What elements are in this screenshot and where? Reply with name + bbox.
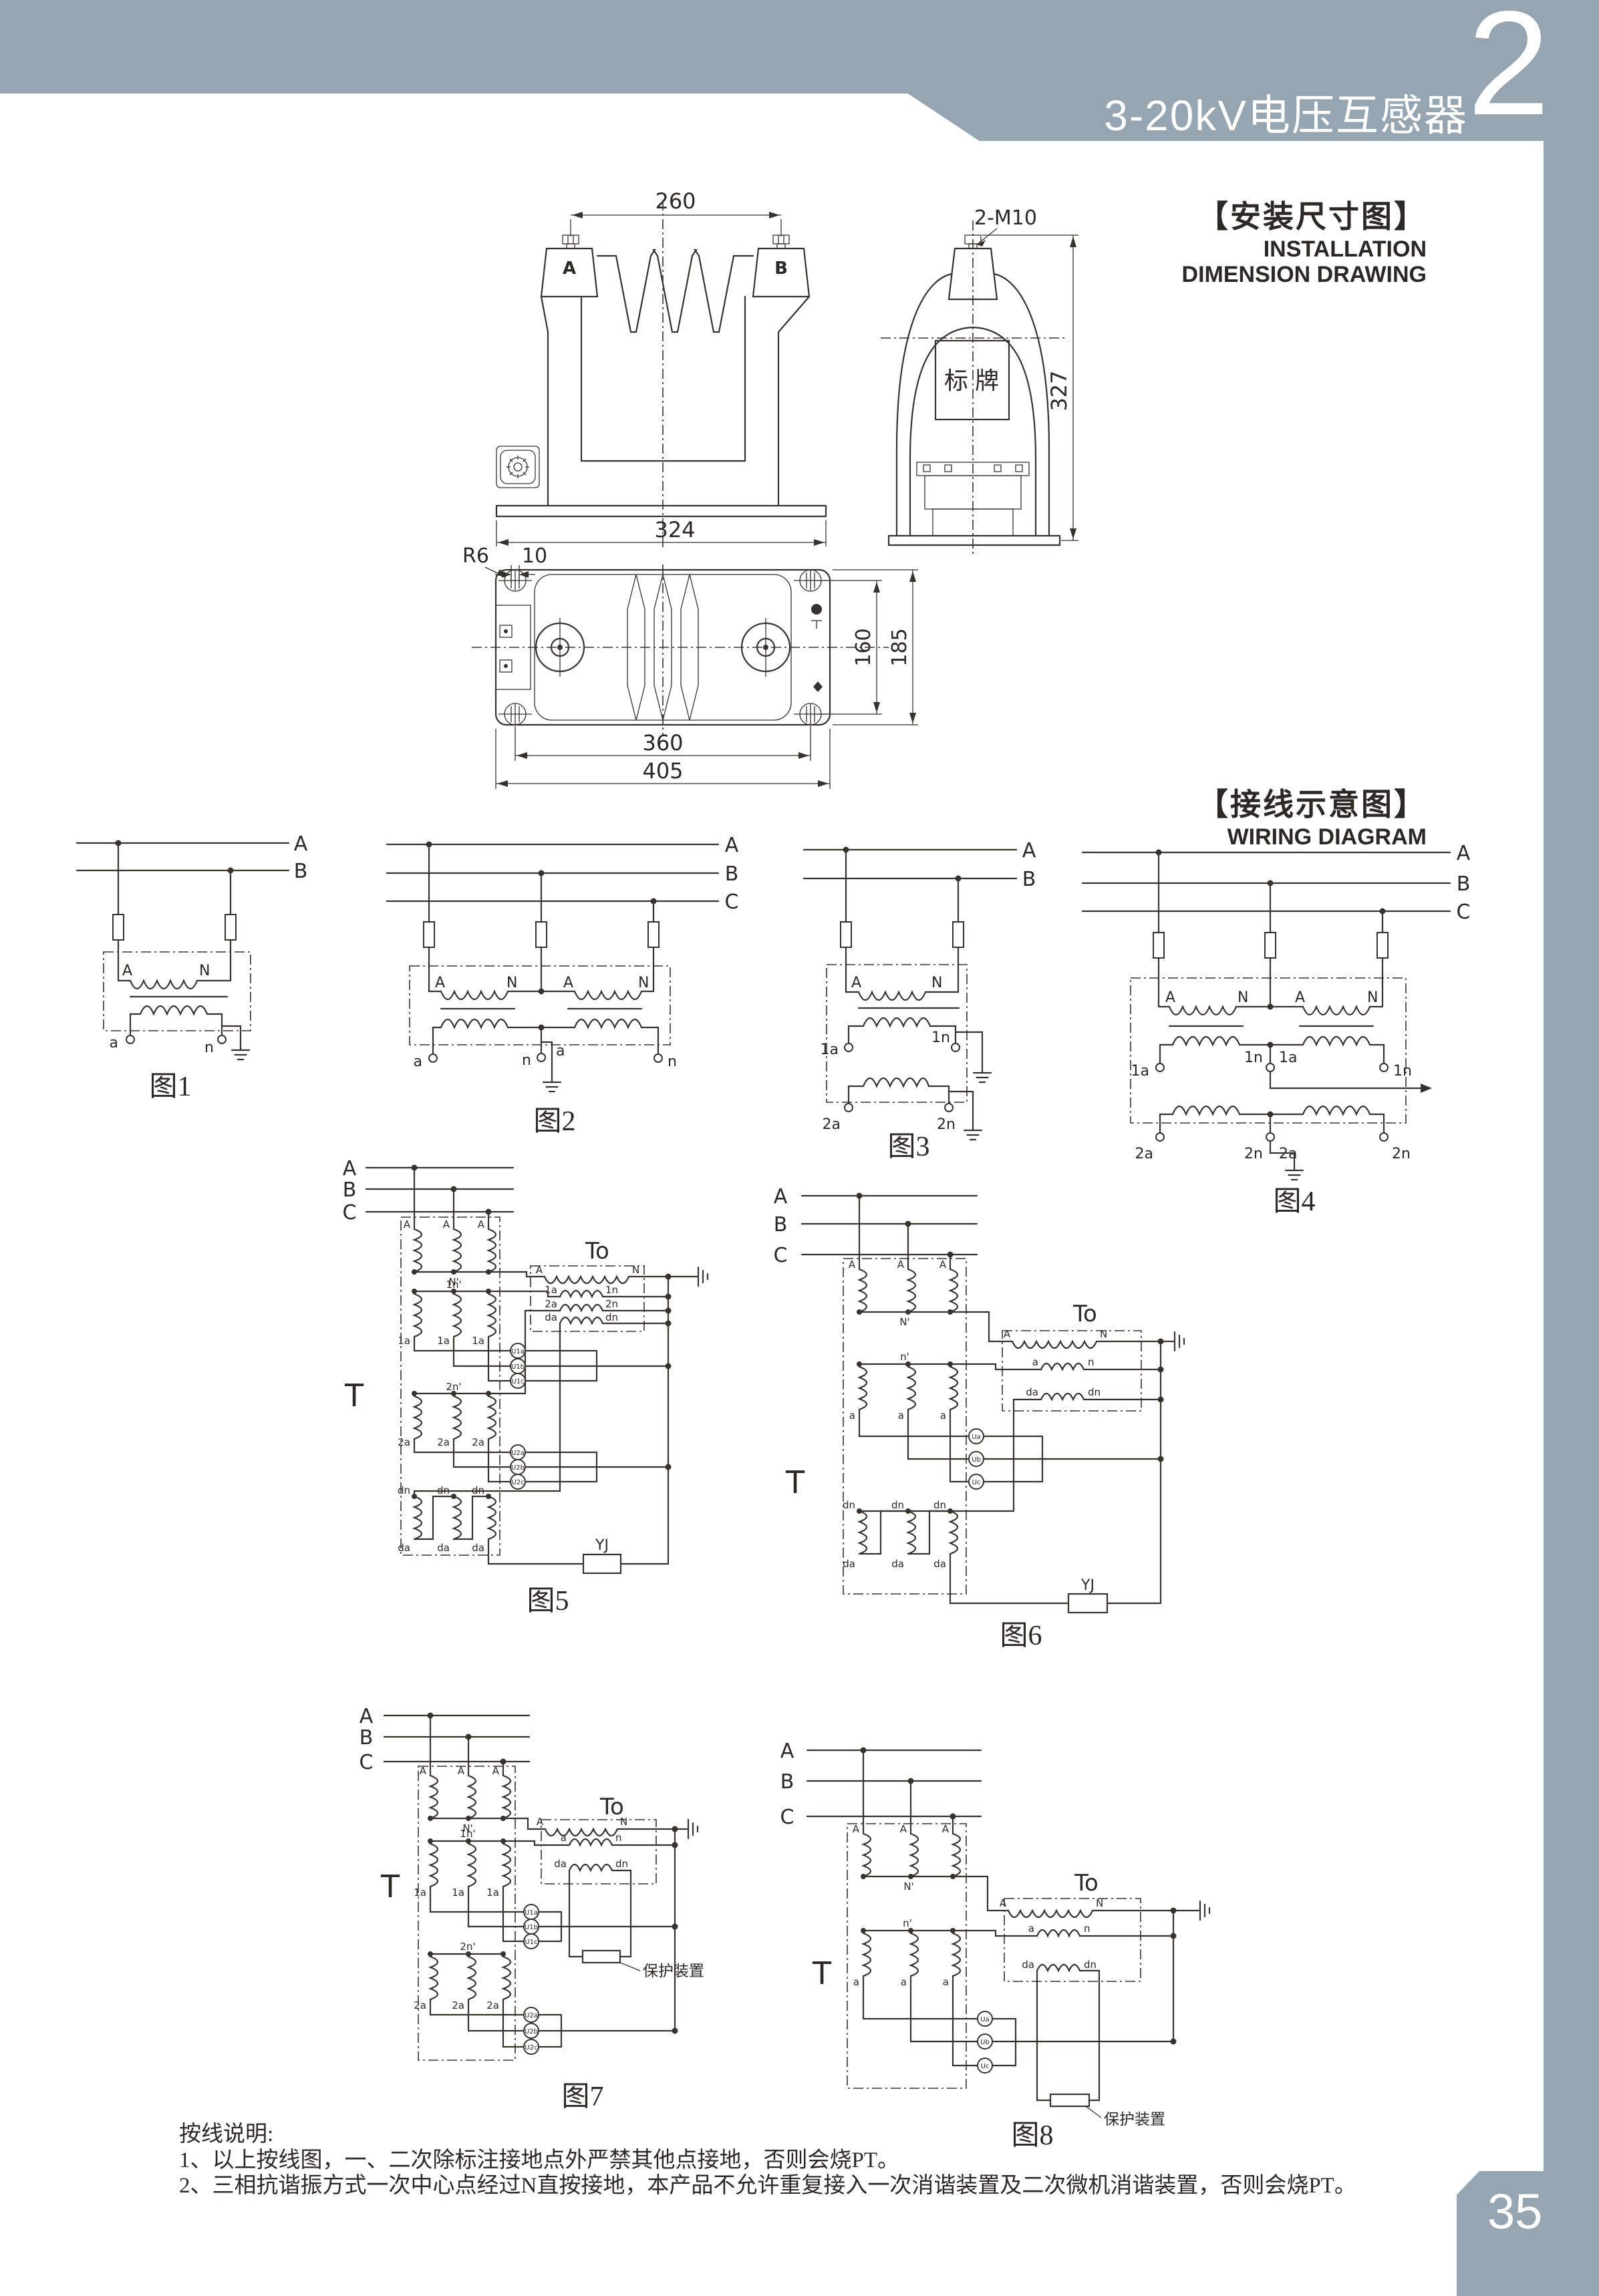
terminal-label: da xyxy=(843,1558,855,1570)
winding-label: A xyxy=(942,1823,950,1835)
dim-405: 405 xyxy=(642,758,683,784)
winding-label: a xyxy=(1032,1356,1038,1368)
winding-label: A xyxy=(897,1259,905,1271)
secondary-terminal: a xyxy=(556,1043,565,1059)
terminal-label: 1a xyxy=(414,1887,426,1899)
winding-label: da xyxy=(545,1311,557,1323)
row-label: 2n' xyxy=(446,1381,461,1393)
winding-label: N xyxy=(1096,1897,1103,1909)
secondary-terminal: 1n xyxy=(931,1029,950,1046)
header-band xyxy=(0,0,1599,94)
bus-label: B xyxy=(359,1726,374,1750)
wiring-figure-8: A B C T A A A N' To A N a n da dn 保护装置 n… xyxy=(775,1730,1243,2171)
bus-label: B xyxy=(774,1213,788,1237)
notes-title: 按线说明: xyxy=(179,2122,1409,2148)
winding-label: dn xyxy=(1088,1386,1101,1398)
terminal-label: a xyxy=(901,1976,907,1988)
bus-label: C xyxy=(780,1806,794,1829)
winding-label: n xyxy=(615,1832,622,1844)
row-label: 1n' xyxy=(446,1279,461,1291)
secondary-terminal: 1a xyxy=(1131,1063,1149,1080)
meter-label: U1a xyxy=(511,1348,525,1355)
winding-label: A xyxy=(536,1264,543,1276)
dim-324: 324 xyxy=(654,517,695,542)
row-label: 1n' xyxy=(460,1828,475,1840)
row-label: n' xyxy=(900,1351,909,1363)
secondary-terminal: 1n xyxy=(1393,1063,1412,1080)
terminal-label: dn xyxy=(843,1499,855,1511)
meter-label: U1b xyxy=(525,1924,538,1931)
winding-label: A xyxy=(537,1816,544,1828)
page-title: 3-20kV电压互感器 xyxy=(1104,81,1468,143)
meter-label: U2b xyxy=(525,2028,538,2035)
winding-label: A xyxy=(849,1259,856,1271)
winding-label: A xyxy=(458,1765,465,1777)
terminal-b-label: B xyxy=(774,259,788,279)
installation-heading-zh: 【安装尺寸图】 xyxy=(1182,192,1427,236)
ground-symbol xyxy=(543,1082,561,1092)
terminal-label: 2a xyxy=(472,1436,484,1448)
primary-label: A xyxy=(435,975,445,991)
winding-label: dn xyxy=(605,1311,618,1323)
winding-label: N xyxy=(632,1264,639,1276)
neutral-label: N' xyxy=(899,1316,909,1328)
wiring-figure-7: A B C T A A A N' To A N a n da dn 保护装置 1… xyxy=(314,1697,768,2124)
figure-caption: 图3 xyxy=(887,1132,929,1162)
transformer-group-label: T xyxy=(812,1955,832,1991)
winding-label: a xyxy=(561,1832,567,1844)
dim-160: 160 xyxy=(852,628,875,666)
front-view: 260 A B xyxy=(496,188,826,548)
bus-label: B xyxy=(1457,872,1471,896)
figure-caption: 图6 xyxy=(1000,1621,1042,1651)
winding-label: 2a xyxy=(545,1298,557,1310)
protection-device-label: 保护装置 xyxy=(643,1963,704,1980)
ground-symbol xyxy=(964,1130,982,1140)
aux-transformer-label: To xyxy=(1074,1870,1099,1897)
installation-heading-en1: INSTALLATION xyxy=(1182,236,1427,262)
installation-heading-en2: DIMENSION DRAWING xyxy=(1182,262,1427,287)
bus-label: A xyxy=(780,1740,794,1763)
plan-view: R6 10 160 185 360 405 xyxy=(462,544,918,789)
terminal-label: 1a xyxy=(486,1887,499,1899)
terminal-label: da xyxy=(891,1558,904,1570)
row-label: 2n' xyxy=(460,1941,475,1953)
winding-label: da xyxy=(554,1858,567,1870)
winding-label: a xyxy=(1028,1923,1034,1935)
winding-label: A xyxy=(1004,1328,1011,1340)
secondary-terminal: 2n xyxy=(1392,1146,1411,1162)
primary-label: N xyxy=(1367,989,1378,1006)
ground-stud xyxy=(811,604,822,615)
winding-label: A xyxy=(900,1823,907,1835)
ground-symbol xyxy=(1200,1901,1209,1920)
bus-label: C xyxy=(343,1201,357,1224)
bus-label: B xyxy=(780,1770,794,1794)
secondary-terminal: n xyxy=(668,1053,677,1070)
primary-label: N xyxy=(931,975,942,991)
transformer-group-label: T xyxy=(344,1377,364,1414)
bus-label: A xyxy=(1022,839,1036,862)
terminal-label: dn xyxy=(891,1499,904,1511)
winding-label: A xyxy=(853,1823,860,1835)
winding-label: N xyxy=(620,1816,627,1828)
winding-label: dn xyxy=(1084,1959,1097,1971)
meter-label: Uc xyxy=(981,2063,990,2070)
terminal-label: a xyxy=(849,1410,855,1422)
figure-caption: 图1 xyxy=(149,1072,191,1102)
ground-symbol xyxy=(1286,1170,1303,1180)
primary-label: N xyxy=(506,975,517,991)
bus-label: A xyxy=(343,1157,357,1180)
winding-label: A xyxy=(492,1765,500,1777)
notes-line-1: 1、以上按线图，一、二次除标注接地点外严禁其他点接地，否则会烧PT。 xyxy=(179,2148,1409,2174)
nameplate-text: 标牌 xyxy=(944,367,1006,395)
gland-hatch xyxy=(506,456,529,478)
primary-label: N xyxy=(1238,989,1248,1006)
winding-label: 1n xyxy=(605,1284,618,1296)
dim-10: 10 xyxy=(522,544,547,568)
secondary-terminal: a xyxy=(414,1053,422,1070)
terminal-label: da xyxy=(398,1542,410,1554)
bus-label: C xyxy=(725,890,739,914)
primary-label: A xyxy=(851,975,861,991)
transformer-group-label: T xyxy=(380,1868,400,1905)
secondary-terminal: a xyxy=(110,1035,118,1051)
bus-label: A xyxy=(725,834,739,857)
meter-label: Ua xyxy=(972,1434,980,1441)
relay-label: YJ xyxy=(1080,1577,1095,1594)
ground-symbol xyxy=(698,1267,708,1286)
terminal-label: dn xyxy=(472,1484,484,1496)
terminal-label: a xyxy=(853,1976,859,1988)
winding-label: A xyxy=(939,1259,947,1271)
installation-heading: 【安装尺寸图】 INSTALLATION DIMENSION DRAWING xyxy=(1182,192,1427,287)
figure-caption: 图7 xyxy=(561,2082,603,2112)
secondary-terminal: 1a xyxy=(1279,1049,1297,1066)
primary-label: A xyxy=(1165,989,1175,1006)
dim-260: 260 xyxy=(655,188,696,214)
terminal-label: da xyxy=(933,1558,946,1570)
row-label: n' xyxy=(903,1917,912,1929)
winding-label: N xyxy=(1100,1328,1107,1340)
installation-dimension-drawing: 260 A B xyxy=(428,174,1136,795)
bus-label: C xyxy=(1457,900,1471,924)
dim-360: 360 xyxy=(642,730,683,756)
meter-label: U1a xyxy=(525,1909,538,1917)
terminal-label: 2a xyxy=(486,1999,499,2011)
meter-label: Uc xyxy=(972,1479,981,1486)
winding-label: n xyxy=(1084,1923,1091,1935)
transformer-group-label: T xyxy=(785,1464,805,1500)
bus-label: C xyxy=(774,1244,788,1267)
wiring-notes: 按线说明: 1、以上按线图，一、二次除标注接地点外严禁其他点接地，否则会烧PT。… xyxy=(179,2122,1409,2199)
terminal-label: 2a xyxy=(437,1436,450,1448)
meter-label: U2c xyxy=(525,2044,537,2052)
terminal-label: dn xyxy=(437,1484,450,1496)
right-border-band xyxy=(1544,0,1599,2296)
secondary-terminal: 1a xyxy=(821,1041,839,1058)
terminal-label: da xyxy=(437,1542,450,1554)
secondary-terminal: 1n xyxy=(1244,1049,1263,1066)
primary-label: A xyxy=(563,975,573,991)
winding-label: A xyxy=(443,1218,450,1231)
dim-r6: R6 xyxy=(462,544,489,568)
terminal-label: 2a xyxy=(398,1436,410,1448)
terminal-label: dn xyxy=(933,1499,946,1511)
winding-label: da xyxy=(1022,1959,1034,1971)
winding-label: A xyxy=(478,1218,485,1231)
bus-label: A xyxy=(294,832,308,856)
winding-label: A xyxy=(404,1218,411,1231)
secondary-terminal: 2a xyxy=(823,1116,841,1133)
terminal-label: dn xyxy=(398,1484,410,1496)
winding-label: 1a xyxy=(545,1284,557,1296)
ground-symbol xyxy=(1175,1332,1184,1351)
winding-label: A xyxy=(420,1765,427,1777)
primary-label: N xyxy=(638,975,649,991)
meter-label: U2a xyxy=(511,1450,525,1457)
terminal-label: 1a xyxy=(472,1335,484,1347)
wiring-heading-zh: 【接线示意图】 xyxy=(1197,780,1427,824)
bus-label: B xyxy=(1022,868,1036,891)
wiring-figure-3: A B A N 1a 1n 2a 2n 图3 xyxy=(768,828,1062,1169)
meter-label: U2c xyxy=(511,1479,524,1486)
bus-label: A xyxy=(1457,842,1471,865)
figure-caption: 图5 xyxy=(527,1586,569,1617)
terminal-a-label: A xyxy=(563,259,576,279)
chapter-number: 2 xyxy=(1467,0,1550,138)
wiring-figure-6: A B C T A A A N' To A N a n da dn n' a a… xyxy=(755,1169,1209,1657)
bus-label: B xyxy=(725,862,739,886)
terminal-label: 1a xyxy=(452,1887,464,1899)
secondary-terminal: n xyxy=(522,1052,531,1069)
wiring-figure-1: A B A N a n 图1 xyxy=(40,828,327,1109)
terminal-label: 1a xyxy=(437,1335,450,1347)
bolt-spec-label: 2-M10 xyxy=(974,206,1037,230)
bus-label: A xyxy=(774,1185,788,1208)
figure-caption: 图4 xyxy=(1273,1186,1315,1217)
secondary-terminal: n xyxy=(204,1039,214,1056)
neutral-label: N' xyxy=(903,1880,913,1893)
wiring-figure-2: A B C A N A N a n a n 图2 xyxy=(354,828,755,1142)
winding-label: 2n xyxy=(605,1298,618,1310)
terminal-label: 2a xyxy=(414,1999,426,2011)
rib-valleys xyxy=(616,250,734,332)
terminal-label: a xyxy=(943,1976,949,1988)
ground-symbol xyxy=(974,1073,991,1082)
winding-label: dn xyxy=(615,1858,628,1870)
ground-symbol xyxy=(688,1820,698,1838)
notes-line-2: 2、三相抗谐振方式一次中心点经过N直按接地，本产品不允许重复接入一次消谐装置及二… xyxy=(179,2173,1409,2199)
terminal-label: 2a xyxy=(452,1999,464,2011)
ground-symbol xyxy=(232,1050,249,1059)
bus-label: B xyxy=(294,860,308,883)
wiring-figure-5: A B C T A A A N' To A N 1a 1n 2a 2n da d… xyxy=(327,1149,715,1623)
meter-label: U2a xyxy=(525,2012,538,2019)
meter-label: Ub xyxy=(980,2039,990,2046)
terminal-label: a xyxy=(940,1410,946,1422)
meter-label: U2b xyxy=(511,1464,525,1472)
meter-label: U1b xyxy=(511,1363,525,1371)
terminal-label: a xyxy=(898,1410,904,1422)
winding-label: A xyxy=(1000,1897,1007,1909)
terminal-label: da xyxy=(472,1542,484,1554)
meter-label: U1c xyxy=(525,1939,537,1946)
secondary-terminal: 2n xyxy=(937,1116,956,1133)
terminal-label: 1a xyxy=(398,1335,410,1347)
bus-label: B xyxy=(343,1178,357,1202)
aux-transformer-label: To xyxy=(1072,1301,1097,1327)
dim-185: 185 xyxy=(888,628,911,666)
aux-transformer-label: To xyxy=(585,1238,609,1265)
primary-label: A xyxy=(122,963,132,979)
datum-mark xyxy=(813,681,823,692)
bus-label: A xyxy=(359,1705,374,1728)
figure-caption: 图2 xyxy=(533,1106,575,1137)
meter-label: U1c xyxy=(511,1378,524,1385)
primary-label: N xyxy=(199,963,210,979)
winding-label: n xyxy=(1088,1356,1095,1368)
meter-label: Ub xyxy=(972,1456,981,1464)
secondary-terminal: 2a xyxy=(1135,1146,1153,1162)
relay-label: YJ xyxy=(595,1537,609,1554)
page-number: 35 xyxy=(1487,2183,1542,2240)
side-view: 2-M10 标牌 327 xyxy=(881,206,1078,554)
dim-327: 327 xyxy=(1046,370,1072,411)
bus-label: C xyxy=(359,1751,374,1774)
winding-label: da xyxy=(1026,1386,1038,1398)
primary-label: A xyxy=(1295,989,1305,1006)
meter-label: Ua xyxy=(980,2016,989,2023)
secondary-terminal: 2n xyxy=(1244,1146,1263,1162)
